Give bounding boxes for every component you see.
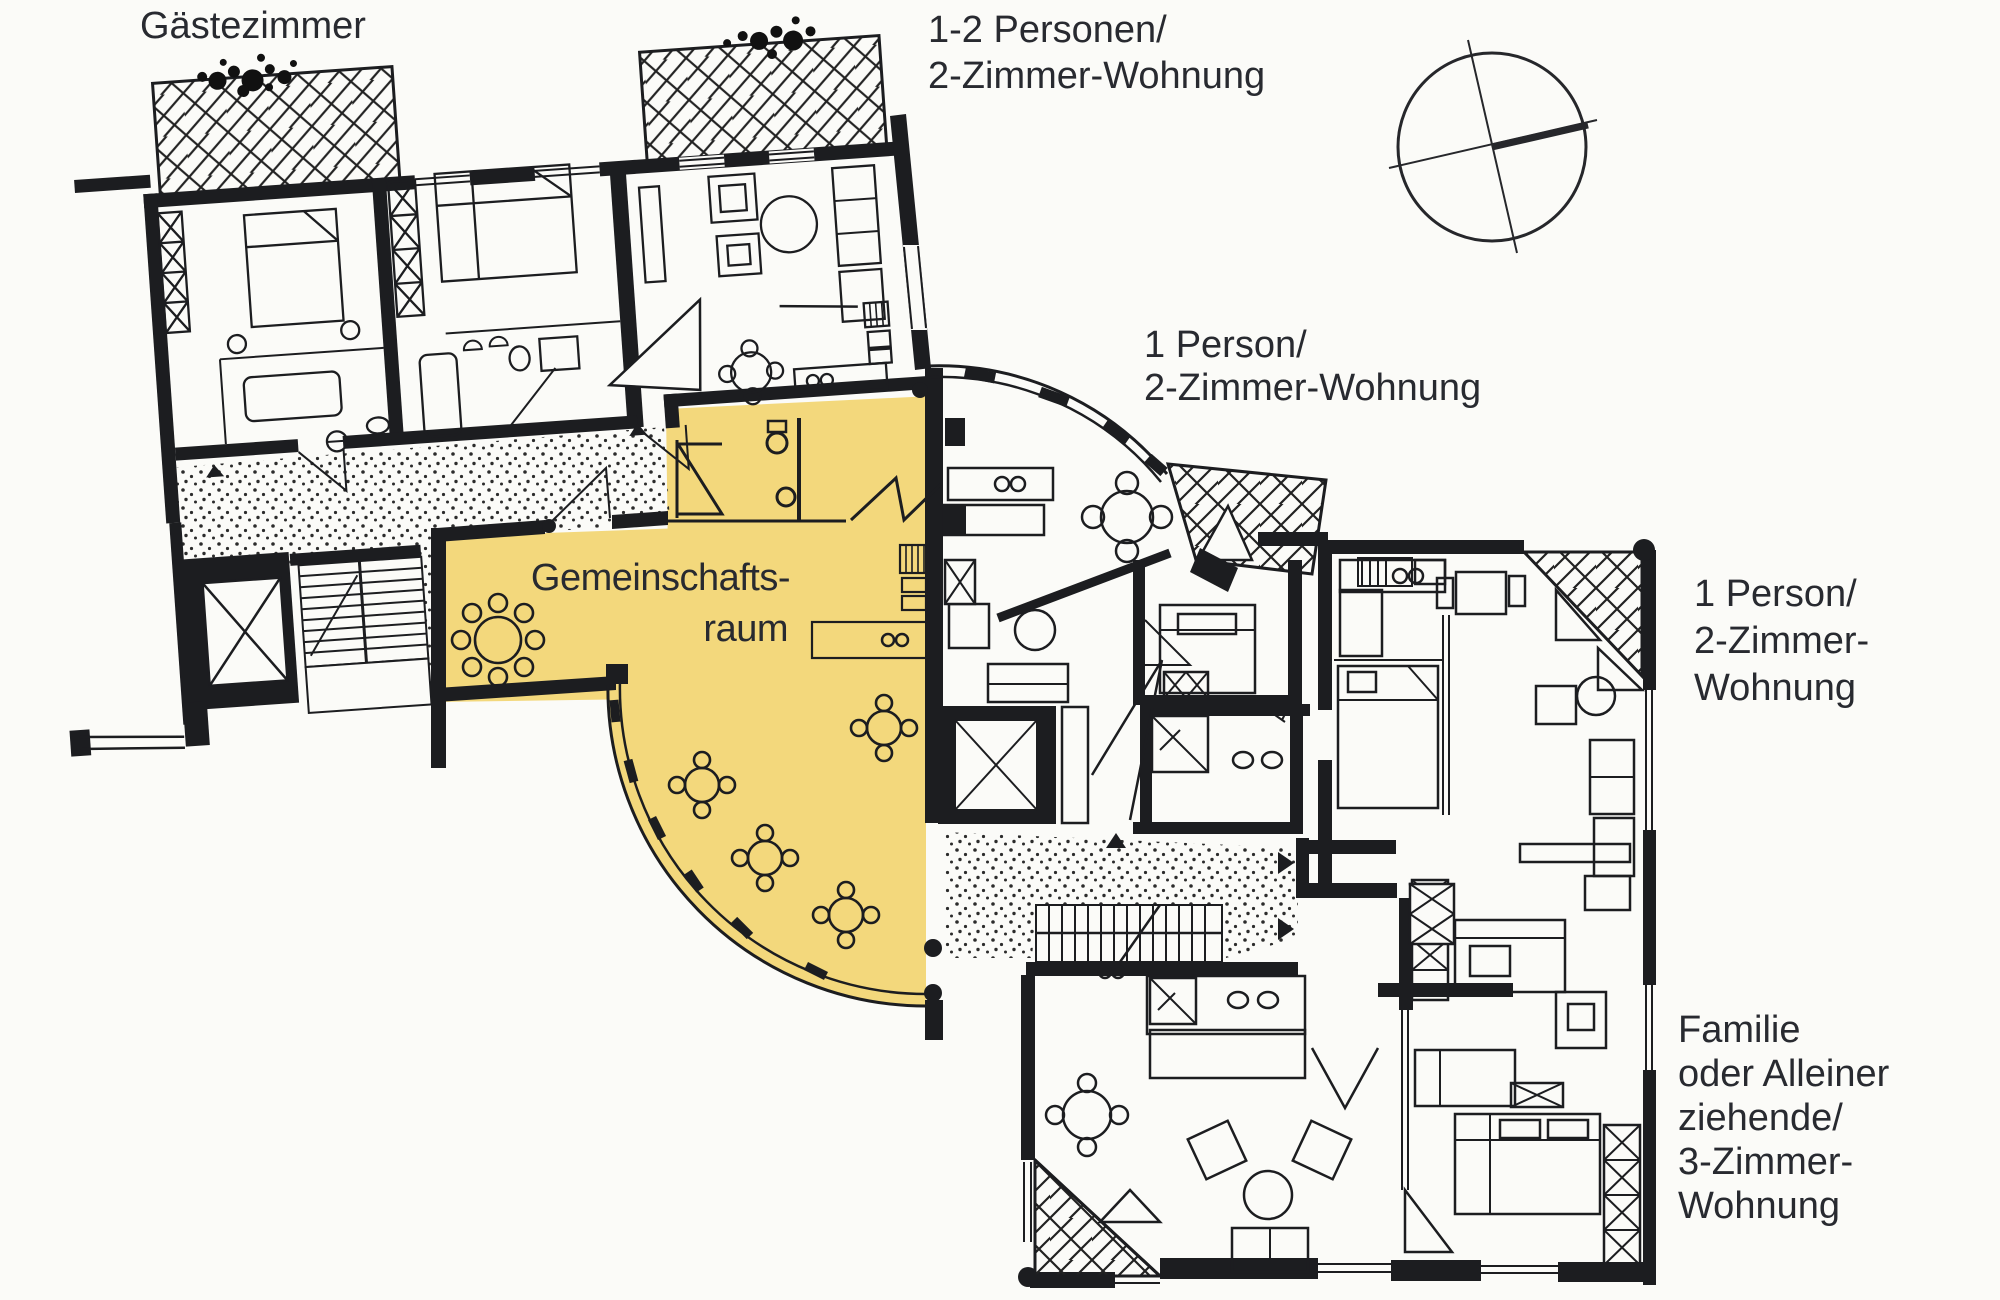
svg-text:2-Zimmer-: 2-Zimmer-: [1694, 620, 1869, 662]
svg-text:1 Person/: 1 Person/: [1144, 324, 1307, 366]
svg-text:Gemeinschafts-: Gemeinschafts-: [531, 557, 790, 599]
svg-text:Wohnung: Wohnung: [1678, 1185, 1840, 1227]
svg-text:2-Zimmer-Wohnung: 2-Zimmer-Wohnung: [1144, 367, 1481, 409]
svg-text:raum: raum: [703, 608, 788, 650]
svg-text:3-Zimmer-: 3-Zimmer-: [1678, 1141, 1853, 1183]
svg-text:Familie: Familie: [1678, 1009, 1800, 1051]
svg-text:ziehende/: ziehende/: [1678, 1097, 1843, 1139]
svg-text:Wohnung: Wohnung: [1694, 667, 1856, 709]
svg-text:Gästezimmer: Gästezimmer: [140, 5, 366, 47]
svg-text:2-Zimmer-Wohnung: 2-Zimmer-Wohnung: [928, 55, 1265, 97]
svg-text:1-2 Personen/: 1-2 Personen/: [928, 9, 1167, 51]
svg-text:oder Alleiner: oder Alleiner: [1678, 1053, 1890, 1095]
svg-text:1 Person/: 1 Person/: [1694, 573, 1857, 615]
